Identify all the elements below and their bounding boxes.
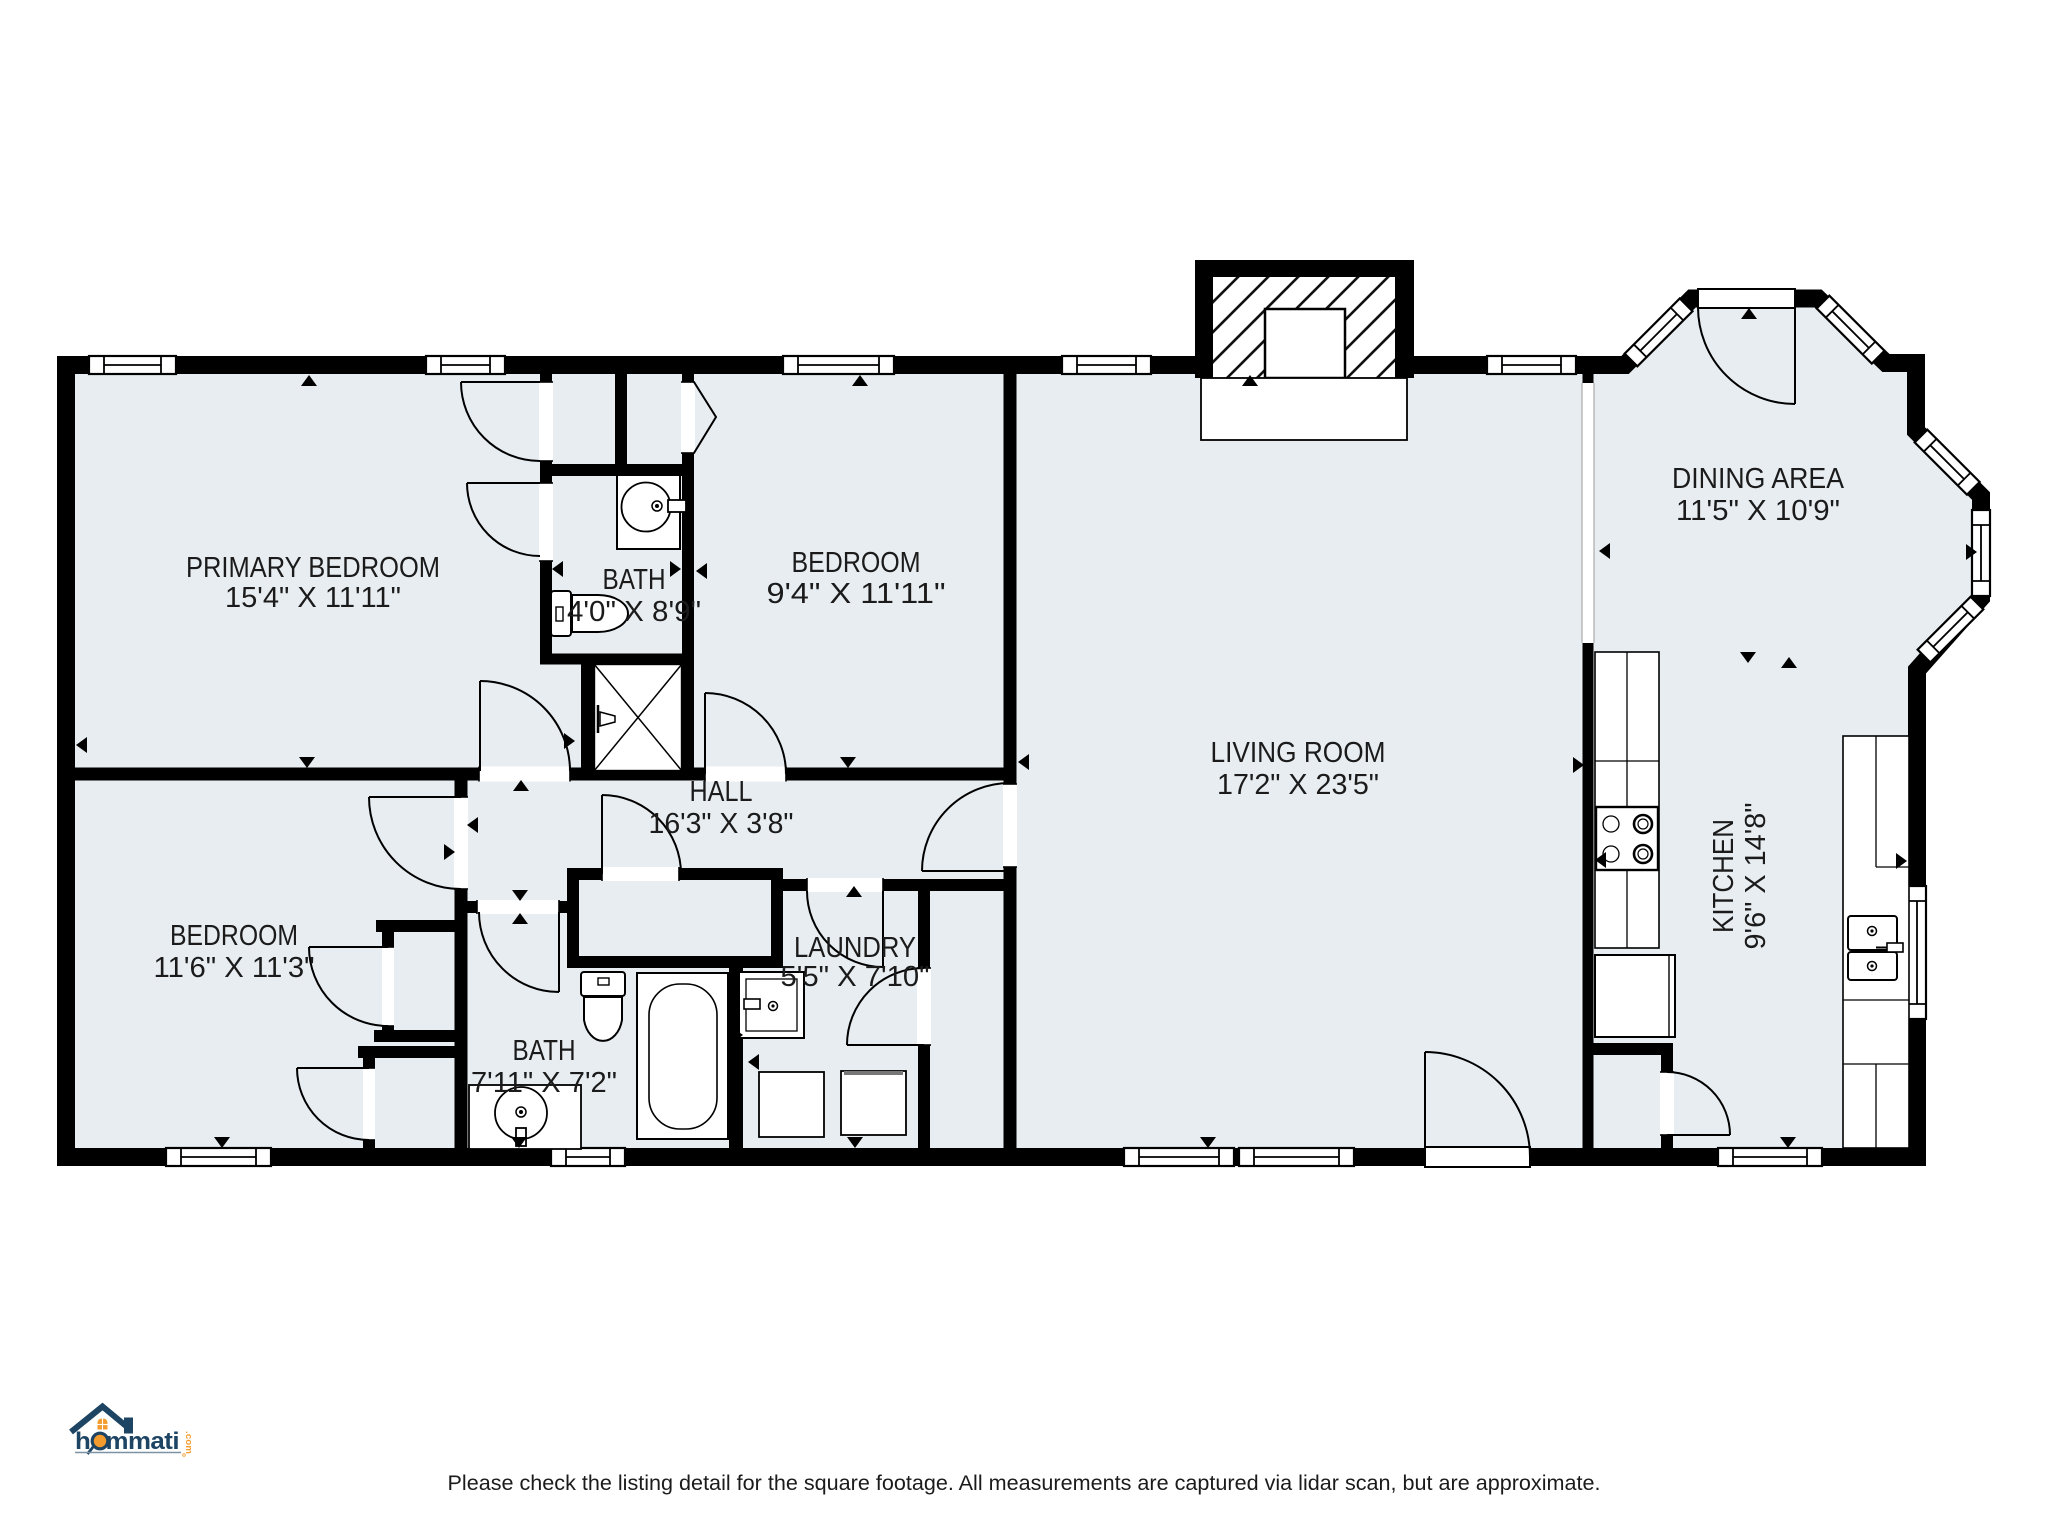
svg-text:Please check the listing detai: Please check the listing detail for the … <box>448 1471 1601 1495</box>
svg-text:LIVING ROOM: LIVING ROOM <box>1211 737 1386 769</box>
svg-text:BEDROOM: BEDROOM <box>792 547 921 579</box>
svg-text:4'0" X 8'9": 4'0" X 8'9" <box>567 596 701 628</box>
svg-text:DINING AREA: DINING AREA <box>1672 463 1844 495</box>
svg-text:LAUNDRY: LAUNDRY <box>794 932 916 964</box>
svg-text:KITCHEN: KITCHEN <box>1708 819 1740 933</box>
svg-text:5'5" X 7'10": 5'5" X 7'10" <box>781 961 930 993</box>
svg-text:17'2" X 23'5": 17'2" X 23'5" <box>1217 769 1379 801</box>
svg-text:HALL: HALL <box>690 776 753 808</box>
svg-text:BEDROOM: BEDROOM <box>170 920 298 952</box>
svg-text:15'4" X 11'11": 15'4" X 11'11" <box>225 582 401 614</box>
svg-text:PRIMARY BEDROOM: PRIMARY BEDROOM <box>186 552 440 584</box>
svg-text:BATH: BATH <box>513 1035 576 1067</box>
svg-text:11'6" X 11'3": 11'6" X 11'3" <box>154 952 315 984</box>
svg-text:7'11" X 7'2": 7'11" X 7'2" <box>471 1067 617 1099</box>
svg-text:9'6" X 14'8": 9'6" X 14'8" <box>1740 803 1772 950</box>
svg-text:16'3" X 3'8": 16'3" X 3'8" <box>649 808 794 840</box>
svg-text:9'4" X 11'11": 9'4" X 11'11" <box>767 578 946 610</box>
svg-text:11'5" X 10'9": 11'5" X 10'9" <box>1676 495 1840 527</box>
svg-text:BATH: BATH <box>603 564 666 596</box>
svg-text:.com: .com <box>183 1431 194 1454</box>
